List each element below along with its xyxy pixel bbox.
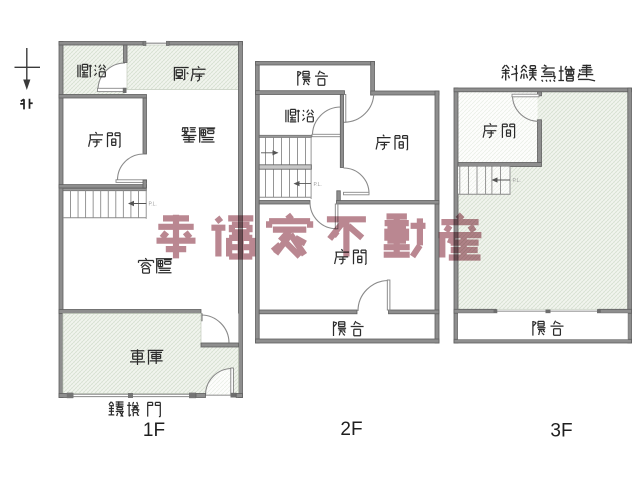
svg-text:1F: 1F <box>143 420 165 441</box>
svg-text:P.L.: P.L. <box>314 182 322 188</box>
svg-text:3F: 3F <box>550 421 572 442</box>
svg-text:P.L.: P.L. <box>513 178 521 184</box>
svg-text:P.L.: P.L. <box>149 202 157 208</box>
svg-text:2F: 2F <box>340 419 362 440</box>
